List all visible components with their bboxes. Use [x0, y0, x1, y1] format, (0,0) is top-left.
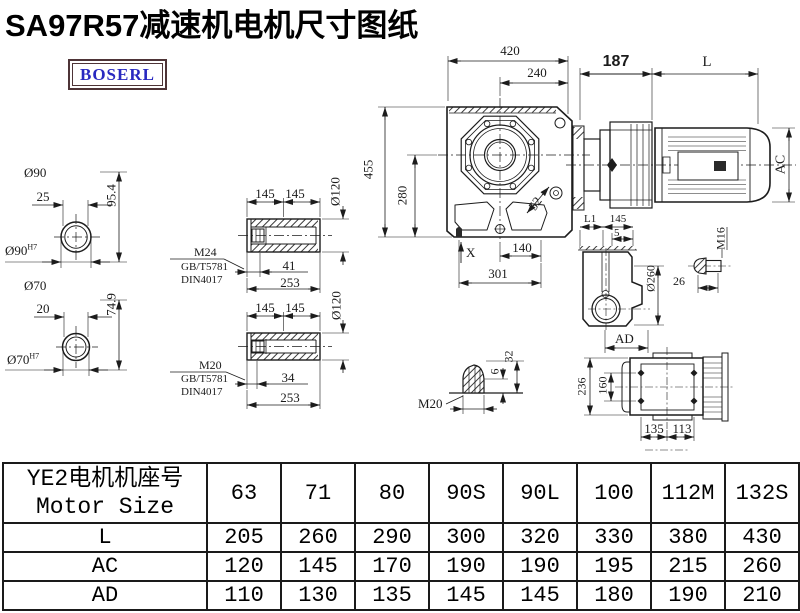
- cell-ac-80: 170: [355, 552, 429, 581]
- col-header-71: 71: [281, 463, 355, 523]
- dim-phi90: Ø90: [24, 165, 46, 180]
- technical-drawing: [0, 0, 800, 460]
- m20-plug-detail: [446, 361, 524, 414]
- dim-145-top-a: 145: [252, 186, 278, 201]
- dim-phi90h7: Ø90H7: [5, 243, 37, 258]
- cell-ad-90l: 145: [503, 581, 577, 610]
- motor-side-view: [566, 68, 796, 208]
- cell-ad-80: 135: [355, 581, 429, 610]
- dim-ad: AD: [615, 331, 634, 346]
- dim-20: 20: [30, 301, 56, 316]
- table-row-l: L 205 260 290 300 320 330 380 430: [3, 523, 799, 552]
- cell-l-71: 260: [281, 523, 355, 552]
- cell-ac-100: 195: [577, 552, 651, 581]
- dim-145-side: 145: [606, 213, 630, 225]
- dim-ac: AC: [774, 150, 789, 180]
- cell-ac-132s: 260: [725, 552, 799, 581]
- dim-phi120-bot: Ø120: [329, 284, 344, 328]
- cell-ad-90s: 145: [429, 581, 503, 610]
- dim-phi70: Ø70: [24, 278, 46, 293]
- dim-phi260: Ø260: [644, 256, 659, 302]
- dim-l1: L1: [584, 213, 596, 225]
- dim-l: L: [695, 55, 719, 70]
- page: { "title": "SA97R57减速机电机尺寸图纸", "logo": {…: [0, 0, 800, 613]
- dim-253-bot: 253: [270, 390, 310, 405]
- dim-253-top: 253: [270, 275, 310, 290]
- col-header-112m: 112M: [651, 463, 725, 523]
- std-din4017-top: DIN4017: [181, 274, 223, 286]
- dim-phi120-top: Ø120: [328, 170, 343, 214]
- dim-34: 34: [276, 370, 300, 385]
- cell-ac-90s: 190: [429, 552, 503, 581]
- cell-l-90s: 300: [429, 523, 503, 552]
- dim-m24: M24: [194, 245, 217, 260]
- table-header-cell: YE2电机机座号 Motor Size: [3, 463, 207, 523]
- gearbox-front-view: [378, 56, 590, 288]
- std-gbt5781-bot: GB/T5781: [181, 373, 228, 385]
- table-header-row: YE2电机机座号 Motor Size 63 71 80 90S 90L 100…: [3, 463, 799, 523]
- cell-l-90l: 320: [503, 523, 577, 552]
- cell-l-63: 205: [207, 523, 281, 552]
- dim-280: 280: [395, 176, 410, 216]
- table-header-en: Motor Size: [4, 493, 206, 521]
- table-row-ac: AC 120 145 170 190 190 195 215 260: [3, 552, 799, 581]
- dim-113: 113: [668, 421, 696, 436]
- cell-ac-90l: 190: [503, 552, 577, 581]
- dim-160: 160: [596, 371, 611, 401]
- dim-420: 420: [490, 43, 530, 58]
- std-gbt5781-top: GB/T5781: [181, 261, 228, 273]
- dim-236: 236: [575, 372, 590, 402]
- cell-l-112m: 380: [651, 523, 725, 552]
- cell-ac-63: 120: [207, 552, 281, 581]
- row-label-ad: AD: [3, 581, 207, 610]
- cell-l-132s: 430: [725, 523, 799, 552]
- dim-x: X: [466, 245, 475, 260]
- col-header-100: 100: [577, 463, 651, 523]
- dim-301: 301: [478, 266, 518, 281]
- dim-5: 5: [614, 227, 620, 239]
- dim-26: 26: [673, 274, 685, 289]
- std-din4017-bot: DIN4017: [181, 386, 223, 398]
- dim-145-top-b: 145: [282, 186, 308, 201]
- dim-455: 455: [361, 150, 376, 190]
- row-label-l: L: [3, 523, 207, 552]
- dim-m16: M16: [714, 222, 729, 256]
- dim-135: 135: [640, 421, 668, 436]
- dim-6: 6: [488, 364, 503, 380]
- dim-25: 25: [30, 189, 56, 204]
- dim-m20-shaft: M20: [199, 358, 222, 373]
- cell-ad-63: 110: [207, 581, 281, 610]
- cell-ad-71: 130: [281, 581, 355, 610]
- col-header-90l: 90L: [503, 463, 577, 523]
- dim-95-4: 95.4: [104, 174, 119, 218]
- cell-ad-100: 180: [577, 581, 651, 610]
- row-label-ac: AC: [3, 552, 207, 581]
- dim-41: 41: [277, 258, 301, 273]
- col-header-80: 80: [355, 463, 429, 523]
- dim-187: 187: [592, 54, 640, 69]
- dim-240: 240: [517, 65, 557, 80]
- table-header-cn: YE2电机机座号: [4, 465, 206, 493]
- col-header-132s: 132S: [725, 463, 799, 523]
- motor-size-table: YE2电机机座号 Motor Size 63 71 80 90S 90L 100…: [2, 462, 800, 611]
- dim-140: 140: [502, 240, 542, 255]
- col-header-63: 63: [207, 463, 281, 523]
- cell-ac-112m: 215: [651, 552, 725, 581]
- dim-145-bot-a: 145: [252, 300, 278, 315]
- dim-32: 32: [502, 345, 517, 369]
- table-row-ad: AD 110 130 135 145 145 180 190 210: [3, 581, 799, 610]
- cell-l-100: 330: [577, 523, 651, 552]
- col-header-90s: 90S: [429, 463, 503, 523]
- cell-l-80: 290: [355, 523, 429, 552]
- cell-ac-71: 145: [281, 552, 355, 581]
- cell-ad-132s: 210: [725, 581, 799, 610]
- cell-ad-112m: 190: [651, 581, 725, 610]
- dim-145-bot-b: 145: [282, 300, 308, 315]
- dim-74-9: 74.9: [104, 283, 119, 327]
- dim-m20-plug: M20: [418, 396, 443, 411]
- dim-phi70h7: Ø70H7: [7, 352, 39, 367]
